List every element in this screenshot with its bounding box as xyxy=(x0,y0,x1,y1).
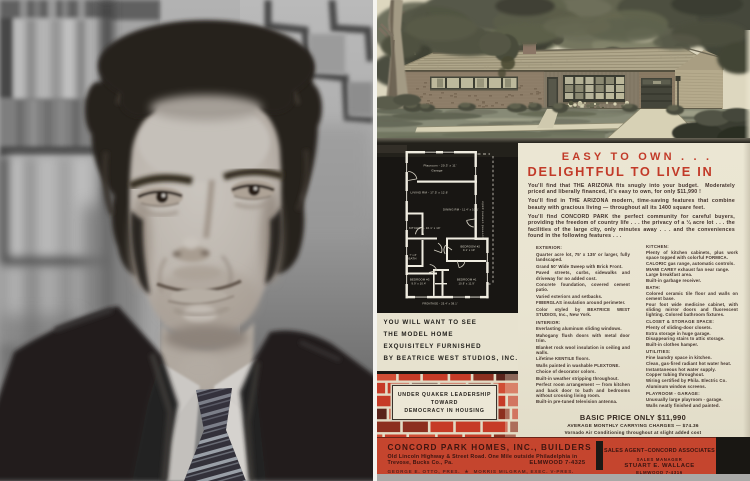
svg-text:Playroom - 20.3' x 11': Playroom - 20.3' x 11' xyxy=(423,164,456,168)
svg-text:DINING RM - 11.4' x 10.1': DINING RM - 11.4' x 10.1' xyxy=(443,208,479,212)
svg-text:LIVING RM - 17.5' x 12.6': LIVING RM - 17.5' x 12.6' xyxy=(411,191,449,195)
svg-text:FRONTAGE - 25.4' x 38.1': FRONTAGE - 25.4' x 38.1' xyxy=(422,302,457,306)
svg-text:BATH: BATH xyxy=(409,257,417,261)
svg-text:10.9' x 11.9': 10.9' x 11.9' xyxy=(459,282,476,286)
svg-text:BEDROOM #1: BEDROOM #1 xyxy=(457,278,477,282)
svg-text:Garage: Garage xyxy=(431,169,442,173)
svg-text:covered cement patio: covered cement patio xyxy=(481,201,485,239)
svg-text:BEDROOM #2: BEDROOM #2 xyxy=(461,245,481,249)
svg-text:KITCHEN - 10.1' x 10': KITCHEN - 10.1' x 10' xyxy=(409,226,441,230)
svg-text:7' x 8': 7' x 8' xyxy=(410,255,418,257)
svg-text:9.1' x 10': 9.1' x 10' xyxy=(463,248,476,252)
svg-text:9.9' x 10.4': 9.9' x 10.4' xyxy=(412,282,427,286)
svg-text:BEDROOM #3: BEDROOM #3 xyxy=(410,278,430,282)
